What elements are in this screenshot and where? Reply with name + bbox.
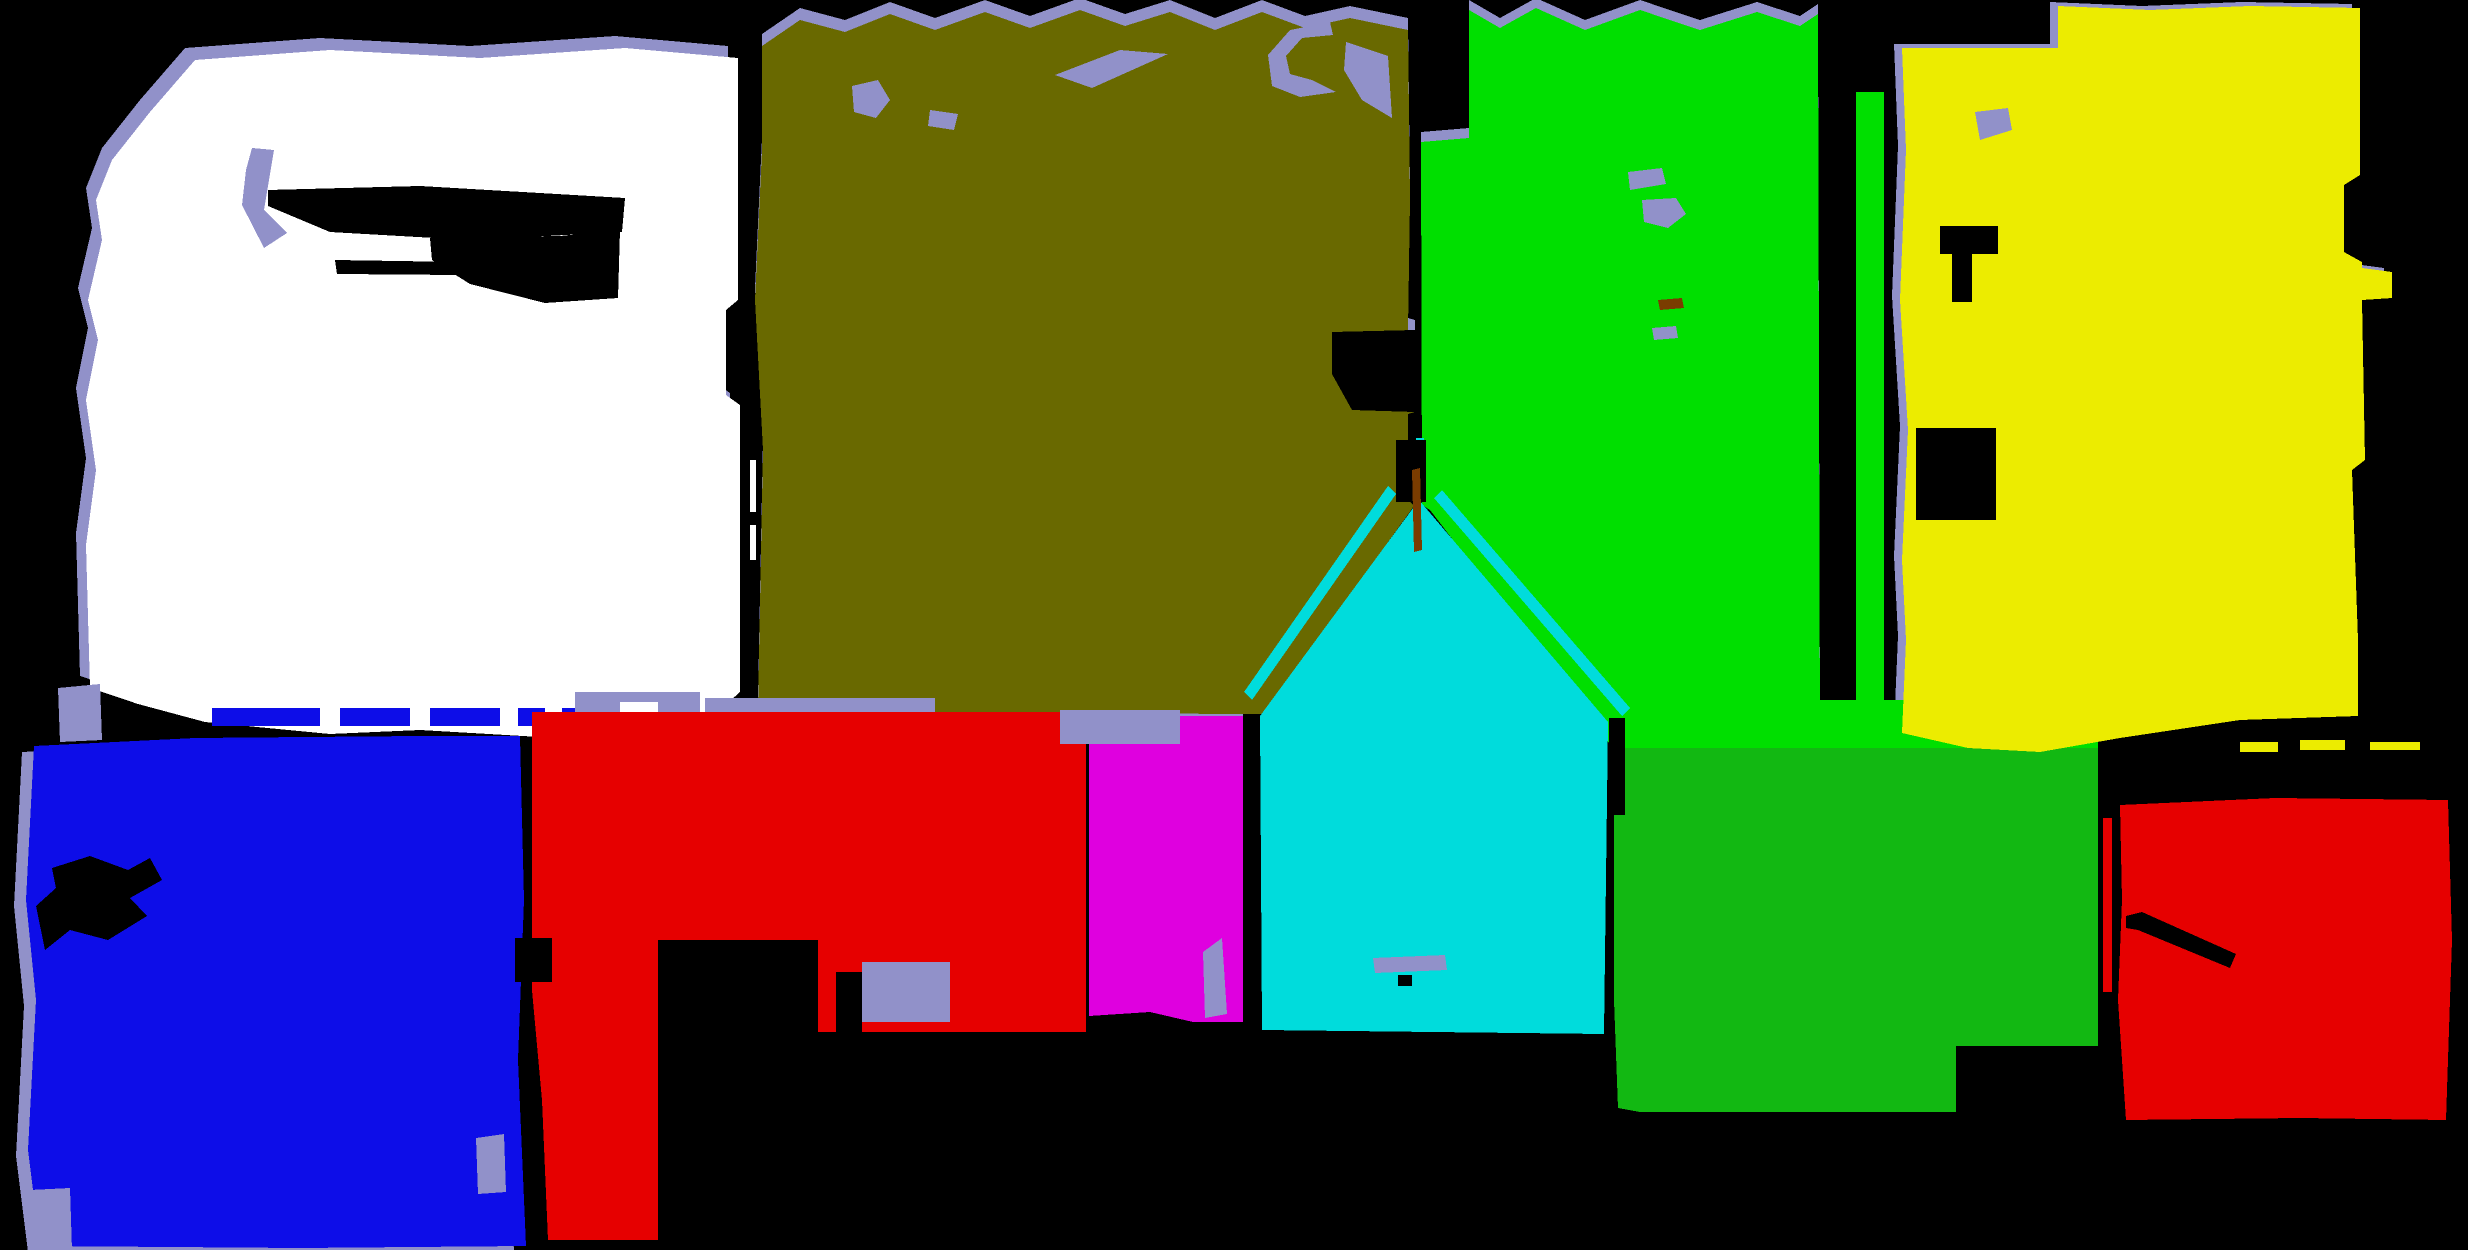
blue-lavender-blob-1	[58, 684, 102, 742]
cyan-lavender-dash	[1373, 955, 1447, 973]
red-leg-notch	[515, 938, 552, 982]
segmentation-mask-canvas	[0, 0, 2468, 1250]
darkgreen-region	[1614, 748, 2098, 1112]
olive-white-dash-2	[750, 525, 756, 560]
red-hole-strip	[836, 972, 862, 1034]
red-bottomright-region	[2118, 798, 2452, 1120]
blue-region	[26, 736, 526, 1248]
blue-dash-gap-2	[410, 706, 430, 728]
blue-dash-gap-3	[500, 706, 518, 728]
cyan-right-black-bar	[1609, 718, 1625, 815]
red-bottomright-sliver	[2103, 818, 2112, 992]
apex-notch-black	[1396, 440, 1426, 502]
yellow-region	[1900, 6, 2392, 752]
yellow-bottom-dash-1	[2240, 742, 2278, 752]
boundary-lavender-strip-b	[705, 698, 935, 712]
green-brown-dash	[1658, 298, 1684, 310]
blue-dash-gap-1	[320, 706, 340, 728]
green-lavender-blob-3	[1652, 326, 1678, 340]
segmentation-mask	[0, 0, 2468, 1250]
segmentation-mask-svg	[0, 0, 2468, 1250]
red-lavender-patch	[862, 962, 950, 1022]
white-region	[86, 48, 740, 737]
green-strip	[1856, 92, 1884, 744]
blue-lavender-blob-3	[30, 1188, 72, 1250]
yellow-notch-black-2	[1916, 428, 1996, 520]
blue-dash-band	[212, 708, 585, 726]
magenta-top-lavender	[1060, 710, 1180, 744]
blue-lavender-blob-2	[476, 1134, 506, 1194]
yellow-bottom-dash-3	[2370, 742, 2420, 750]
olive-white-dash-1	[750, 460, 756, 512]
yellow-bottom-dash-2	[2300, 740, 2345, 750]
red-center-region	[532, 712, 1086, 1240]
cyan-black-dot	[1398, 975, 1412, 986]
